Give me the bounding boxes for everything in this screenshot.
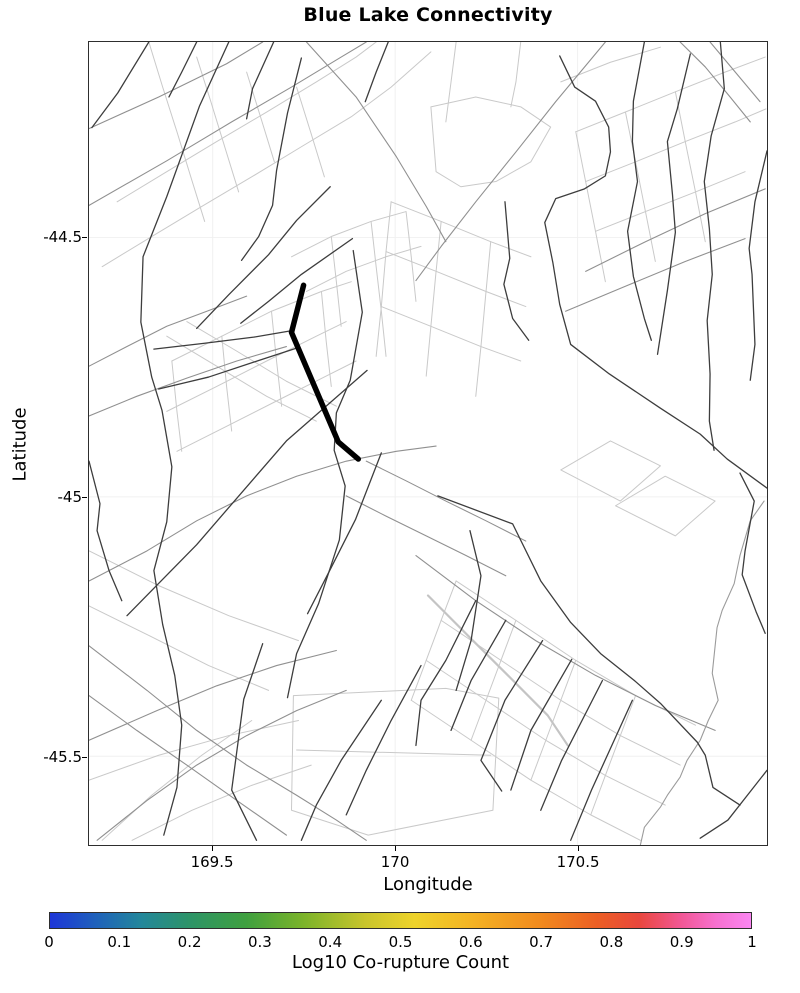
x-tick-mark (395, 846, 396, 851)
x-tick-mark (212, 846, 213, 851)
fault-trace (411, 581, 456, 700)
fault-trace (456, 531, 481, 691)
fault-trace (365, 42, 388, 102)
fault-trace (586, 109, 766, 182)
fault-trace (571, 700, 633, 840)
colorbar-tick-label: 0.7 (529, 933, 553, 951)
y-tick-label: -45.5 (0, 748, 82, 766)
fault-trace (426, 660, 665, 805)
x-tick-mark (578, 846, 579, 851)
colorbar-tick-label: 0.8 (599, 933, 623, 951)
fault-trace (89, 42, 366, 205)
y-axis-label: Latitude (10, 385, 31, 505)
fault-trace (426, 221, 441, 376)
plot-area (88, 41, 768, 846)
fault-trace (346, 666, 421, 815)
fault-trace (308, 453, 382, 614)
colorbar-tick-label: 0.9 (670, 933, 694, 951)
fault-trace (127, 370, 367, 615)
fault-trace (504, 202, 529, 340)
fault-trace (628, 42, 652, 340)
fault-trace (89, 296, 247, 366)
colorbar-tick-label: 0.1 (107, 933, 131, 951)
fault-trace (391, 202, 531, 257)
fault-trace (566, 239, 745, 312)
fault-trace (288, 251, 363, 698)
fault-trace (301, 700, 381, 840)
fault-trace (97, 690, 346, 840)
x-axis-label: Longitude (88, 874, 768, 895)
fault-trace (749, 151, 767, 380)
highlighted-fault (292, 285, 359, 459)
fault-trace (511, 42, 521, 107)
fault-trace (172, 361, 182, 451)
fault-trace (89, 646, 366, 841)
colorbar-tick-label: 0.2 (178, 933, 202, 951)
y-tick-label: -44.5 (0, 228, 82, 246)
fault-trace (710, 42, 760, 102)
fault-trace (89, 347, 286, 416)
fault-trace (271, 311, 281, 406)
fault-trace (704, 42, 724, 450)
fault-trace (596, 172, 746, 232)
fault-trace (177, 361, 356, 451)
colorbar-tick-label: 0 (44, 933, 54, 951)
x-tick-label: 169.5 (191, 853, 234, 871)
fault-trace (89, 696, 286, 836)
fault-trace (321, 291, 331, 386)
y-tick-mark (82, 497, 87, 498)
fault-trace (481, 641, 543, 791)
fault-trace (366, 461, 526, 541)
fault-trace (89, 446, 436, 581)
fault-trace (416, 42, 605, 281)
fault-trace (416, 556, 715, 731)
y-tick-mark (82, 237, 87, 238)
fault-trace (197, 187, 331, 329)
colorbar (49, 912, 752, 929)
fault-trace (531, 660, 576, 780)
fault-trace (658, 54, 691, 354)
fault-trace (576, 57, 765, 132)
fault-trace (306, 246, 421, 291)
fault-trace (511, 659, 572, 790)
fault-trace (441, 620, 680, 765)
colorbar-tick-label: 1 (747, 933, 757, 951)
figure: Blue Lake Connectivity 169.5170170.5 -44… (0, 0, 800, 993)
fault-trace (446, 42, 456, 122)
fault-trace (576, 132, 606, 282)
fault-trace (406, 212, 416, 302)
colorbar-tick-label: 0.3 (248, 933, 272, 951)
fault-trace (247, 72, 275, 162)
fault-trace (89, 42, 263, 129)
fault-trace (89, 721, 298, 781)
colorbar-tick-label: 0.4 (318, 933, 342, 951)
fault-trace (640, 501, 764, 845)
fault-trace (675, 92, 705, 242)
colorbar-tick-label: 0.6 (459, 933, 483, 951)
fault-trace (242, 58, 302, 260)
fault-trace (616, 476, 716, 536)
fault-trace (247, 42, 274, 119)
fault-trace (89, 461, 122, 601)
fault-trace (132, 765, 311, 840)
fault-trace (149, 42, 205, 221)
fault-trace (197, 57, 239, 192)
y-tick-mark (82, 757, 87, 758)
fault-trace (292, 212, 407, 257)
chart-title: Blue Lake Connectivity (88, 4, 768, 26)
fault-trace (561, 441, 661, 501)
fault-trace (700, 770, 767, 838)
x-tick-label: 170 (381, 853, 410, 871)
fault-trace (431, 97, 551, 187)
fault-trace (561, 47, 661, 82)
colorbar-label: Log10 Co-rupture Count (49, 952, 752, 973)
fault-trace (476, 242, 491, 397)
colorbar-tick-label: 0.5 (389, 933, 413, 951)
x-tick-label: 170.5 (557, 853, 600, 871)
fault-trace (456, 581, 695, 725)
fault-trace (381, 307, 520, 361)
fault-trace (297, 87, 325, 177)
fault-trace (471, 620, 516, 740)
fault-trace (154, 330, 293, 349)
fault-map-svg (89, 42, 767, 845)
fault-trace (169, 42, 197, 97)
fault-trace (297, 750, 491, 755)
fault-trace (591, 696, 636, 815)
